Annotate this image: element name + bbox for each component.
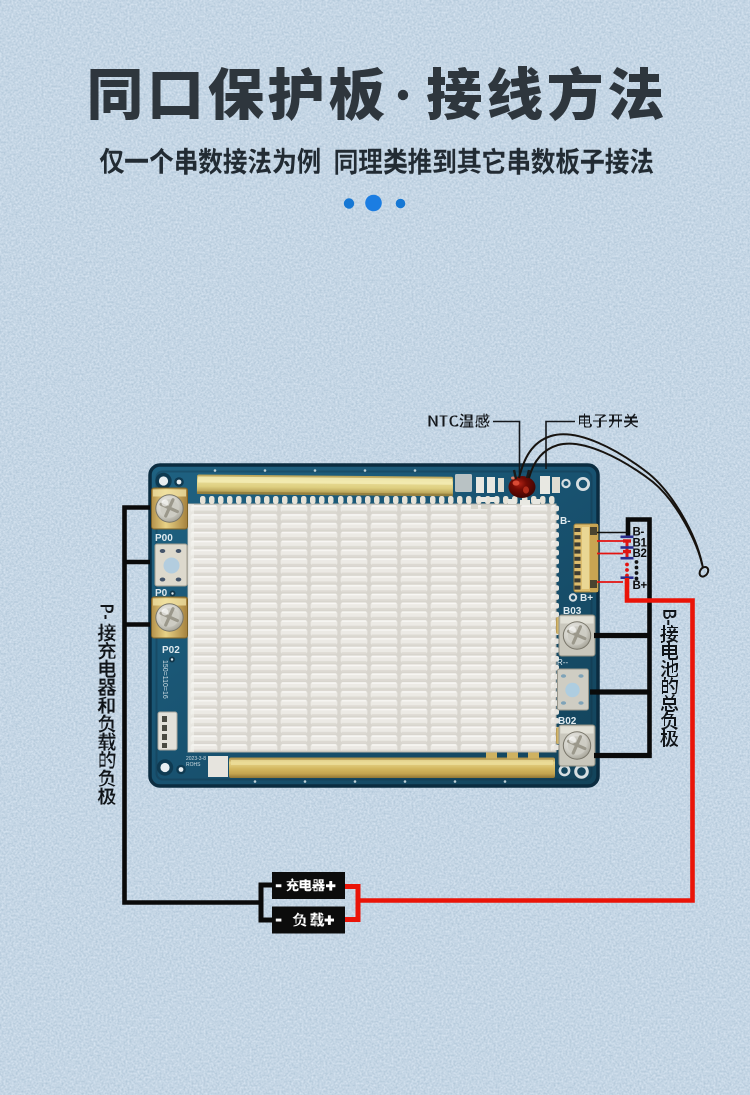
svg-text:B2: B2 xyxy=(633,548,647,560)
svg-text:B+: B+ xyxy=(580,593,593,604)
svg-text:B-: B- xyxy=(560,516,571,527)
svg-text:R--: R-- xyxy=(557,658,568,667)
svg-text:B+: B+ xyxy=(633,580,648,592)
svg-text:P00: P00 xyxy=(155,533,173,544)
svg-text:ROHS: ROHS xyxy=(186,762,201,768)
svg-text:P02: P02 xyxy=(162,645,180,656)
svg-text:150=110=16: 150=110=16 xyxy=(161,660,168,699)
